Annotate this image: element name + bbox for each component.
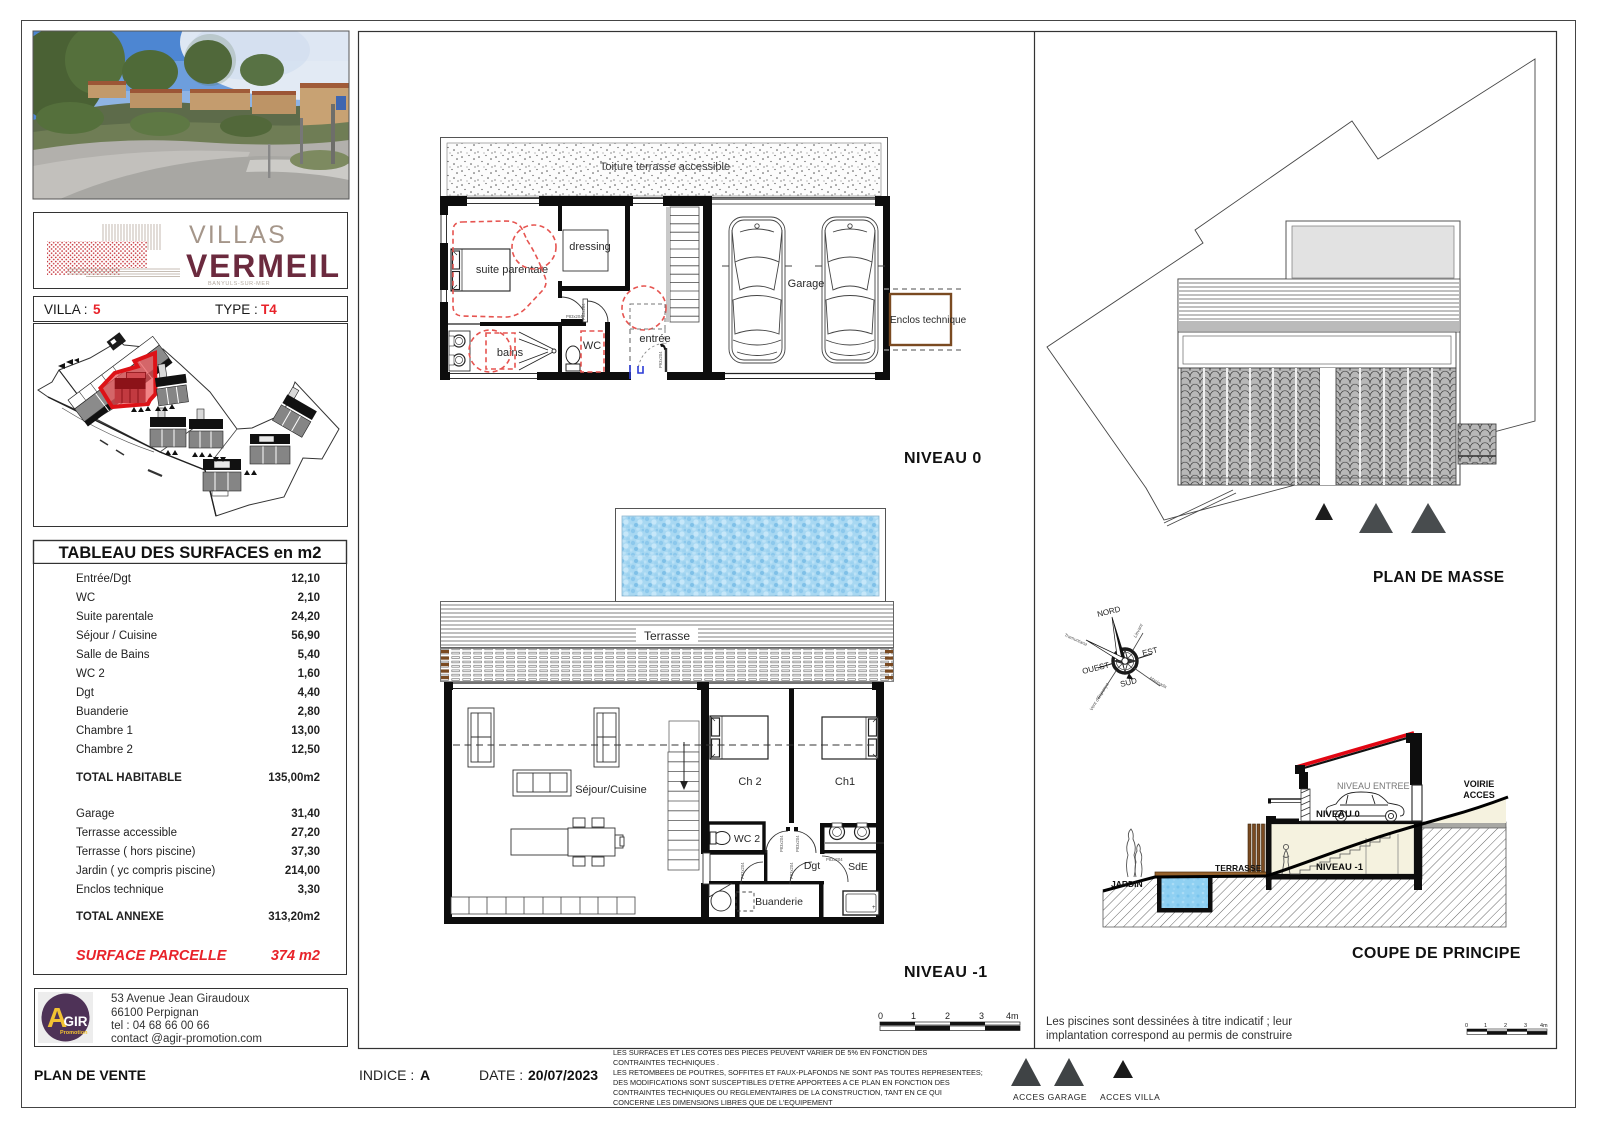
svg-text:T4: T4 (261, 302, 277, 317)
svg-text:entrée: entrée (639, 333, 670, 345)
svg-text:LES SURFACES ET LES COTES DES: LES SURFACES ET LES COTES DES PIECES PEU… (613, 1048, 927, 1057)
svg-text:Dgt: Dgt (804, 860, 820, 872)
svg-text:Ch 2: Ch 2 (738, 776, 761, 788)
svg-text:+: + (872, 905, 876, 911)
svg-text:PLAN DE MASSE: PLAN DE MASSE (1373, 569, 1504, 586)
svg-text:implantation correspond au per: implantation correspond au permis de con… (1046, 1030, 1292, 1042)
svg-text:2: 2 (945, 1011, 950, 1021)
svg-text:66100 Perpignan: 66100 Perpignan (111, 1007, 199, 1019)
svg-text:TOTAL HABITABLE: TOTAL HABITABLE (76, 772, 182, 784)
svg-text:24,20: 24,20 (291, 611, 320, 623)
svg-text:LES RETOMBEES DE POUTRES, SOFF: LES RETOMBEES DE POUTRES, SOFFITES ET FA… (613, 1068, 983, 1077)
svg-text:P83x204: P83x204 (789, 862, 794, 879)
svg-text:12,10: 12,10 (291, 573, 320, 585)
svg-text:Suite parentale: Suite parentale (76, 611, 153, 623)
svg-text:Séjour / Cuisine: Séjour / Cuisine (76, 630, 157, 642)
svg-text:A: A (420, 1067, 430, 1083)
svg-text:WC: WC (583, 340, 601, 352)
svg-text:1,60: 1,60 (298, 668, 320, 680)
svg-text:1: 1 (1484, 1023, 1487, 1029)
svg-text:CONTRAINTES TECHNIQUES OU REGL: CONTRAINTES TECHNIQUES OU REGLEMENTAIRES… (613, 1088, 942, 1097)
svg-text:ACCES GARAGE: ACCES GARAGE (1013, 1092, 1087, 1102)
svg-text:VERMEIL: VERMEIL (186, 248, 341, 284)
svg-text:P83x204: P83x204 (779, 835, 784, 852)
svg-text:Salle de Bains: Salle de Bains (76, 649, 150, 661)
svg-text:5: 5 (93, 302, 101, 317)
svg-text:Garage: Garage (788, 278, 825, 290)
svg-text:Terrasse: Terrasse (644, 629, 690, 643)
svg-text:4,40: 4,40 (298, 687, 320, 699)
svg-text:0: 0 (1465, 1023, 1468, 1029)
svg-text:P83x204: P83x204 (581, 303, 586, 320)
svg-text:DATE :: DATE : (479, 1067, 523, 1083)
svg-text:20/07/2023: 20/07/2023 (528, 1067, 598, 1083)
svg-text:Promotion: Promotion (60, 1030, 88, 1036)
svg-text:ACCES: ACCES (1463, 790, 1495, 800)
svg-text:374 m2: 374 m2 (271, 948, 320, 964)
svg-text:P83x204: P83x204 (795, 835, 800, 852)
svg-text:Buanderie: Buanderie (76, 706, 128, 718)
svg-text:3: 3 (1524, 1023, 1527, 1029)
svg-text:INDICE :: INDICE : (359, 1067, 414, 1083)
svg-text:3: 3 (979, 1011, 984, 1021)
svg-text:53 Avenue Jean Giraudoux: 53 Avenue Jean Giraudoux (111, 993, 250, 1005)
svg-text:NIVEAU 0: NIVEAU 0 (904, 450, 982, 467)
svg-text:TYPE :: TYPE : (215, 302, 258, 317)
svg-text:P83x204: P83x204 (826, 857, 843, 862)
svg-text:GIR: GIR (64, 1014, 88, 1029)
svg-text:WC 2: WC 2 (734, 833, 760, 845)
svg-text:VILLAS: VILLAS (189, 221, 287, 249)
svg-text:2,80: 2,80 (298, 706, 320, 718)
svg-text:2: 2 (1504, 1023, 1507, 1029)
svg-text:31,40: 31,40 (291, 808, 320, 820)
svg-text:313,20m2: 313,20m2 (268, 911, 320, 923)
svg-text:56,90: 56,90 (291, 630, 320, 642)
svg-text:Buanderie: Buanderie (755, 896, 803, 908)
svg-text:DES MODIFICATIONS SONT SUSCEPT: DES MODIFICATIONS SONT SUSCEPTIBLES D'ET… (613, 1078, 950, 1087)
svg-text:Les piscines sont dessinées à: Les piscines sont dessinées à titre indi… (1046, 1016, 1292, 1028)
svg-text:TABLEAU DES SURFACES en m2: TABLEAU DES SURFACES en m2 (59, 544, 322, 562)
svg-text:TOTAL ANNEXE: TOTAL ANNEXE (76, 911, 164, 923)
svg-text:dressing: dressing (569, 241, 611, 253)
svg-text:12,50: 12,50 (291, 744, 320, 756)
svg-text:Garage: Garage (76, 808, 114, 820)
svg-text:JARDIN: JARDIN (1111, 879, 1143, 889)
svg-text:37,30: 37,30 (291, 846, 320, 858)
svg-text:1: 1 (911, 1011, 916, 1021)
svg-text:Terrasse accessible: Terrasse accessible (76, 827, 177, 839)
svg-text:4m: 4m (1540, 1023, 1548, 1029)
svg-text:tel : 04 68 66 00 66: tel : 04 68 66 00 66 (111, 1020, 209, 1032)
svg-text:135,00m2: 135,00m2 (268, 772, 320, 784)
svg-text:VILLA :: VILLA : (44, 302, 88, 317)
svg-text:CONTRAINTES TECHNIQUES .: CONTRAINTES TECHNIQUES . (613, 1058, 719, 1067)
svg-text:CONCERNE LES DIMENSIONS LIBRES: CONCERNE LES DIMENSIONS LIBRES QUE DE L'… (613, 1098, 833, 1107)
svg-text:Dgt: Dgt (76, 687, 95, 699)
svg-text:Jardin ( yc compris piscine): Jardin ( yc compris piscine) (76, 865, 215, 877)
svg-text:NIVEAU -1: NIVEAU -1 (904, 964, 988, 981)
svg-text:Chambre 2: Chambre 2 (76, 744, 133, 756)
svg-text:214,00: 214,00 (285, 865, 320, 877)
svg-text:2,10: 2,10 (298, 592, 320, 604)
svg-text:NIVEAU ENTREE: NIVEAU ENTREE (1337, 781, 1410, 791)
svg-text:4m: 4m (1006, 1011, 1019, 1021)
svg-text:Terrasse ( hors piscine): Terrasse ( hors piscine) (76, 846, 196, 858)
svg-text:suite parentale: suite parentale (476, 264, 548, 276)
svg-text:VOIRIE: VOIRIE (1464, 779, 1495, 789)
svg-text:Toiture terrasse accessible: Toiture terrasse accessible (600, 161, 730, 173)
svg-text:3,30: 3,30 (298, 884, 320, 896)
svg-text:Séjour/Cuisine: Séjour/Cuisine (575, 784, 647, 796)
svg-text:TERRASSE: TERRASSE (1215, 863, 1262, 873)
svg-text:NIVEAU 0: NIVEAU 0 (1316, 809, 1360, 820)
svg-text:P93x204: P93x204 (658, 351, 663, 368)
svg-text:5,40: 5,40 (298, 649, 320, 661)
svg-text:SURFACE PARCELLE: SURFACE PARCELLE (76, 948, 228, 964)
svg-text:PLAN DE VENTE: PLAN DE VENTE (34, 1067, 146, 1083)
svg-text:Entrée/Dgt: Entrée/Dgt (76, 573, 132, 585)
svg-text:ACCES VILLA: ACCES VILLA (1100, 1092, 1160, 1102)
svg-text:NIVEAU -1: NIVEAU -1 (1316, 862, 1364, 873)
svg-text:27,20: 27,20 (291, 827, 320, 839)
svg-text:COUPE DE PRINCIPE: COUPE DE PRINCIPE (1352, 945, 1521, 962)
svg-text:BANYULS-SUR-MER: BANYULS-SUR-MER (208, 281, 270, 287)
svg-text:contact @agir-promotion.com: contact @agir-promotion.com (111, 1033, 262, 1045)
svg-text:Chambre 1: Chambre 1 (76, 725, 133, 737)
svg-text:WC: WC (76, 592, 95, 604)
svg-text:P83x204: P83x204 (740, 862, 745, 879)
svg-text:13,00: 13,00 (291, 725, 320, 737)
svg-text:SdE: SdE (848, 861, 868, 873)
svg-text:Ch1: Ch1 (835, 776, 855, 788)
svg-text:0: 0 (878, 1011, 883, 1021)
svg-text:WC 2: WC 2 (76, 668, 105, 680)
svg-text:Enclos technique: Enclos technique (890, 315, 967, 326)
svg-text:Enclos technique: Enclos technique (76, 884, 164, 896)
